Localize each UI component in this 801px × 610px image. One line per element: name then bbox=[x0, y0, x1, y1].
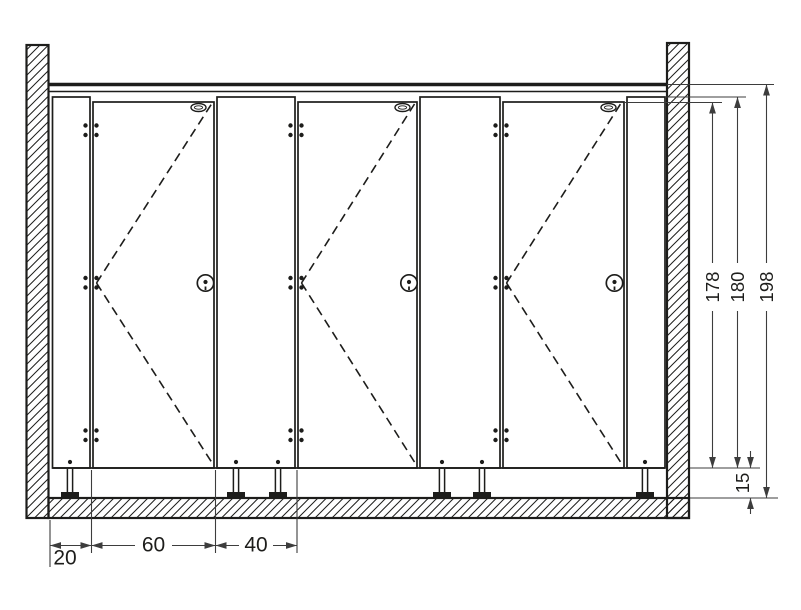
lock-icon bbox=[401, 275, 417, 291]
wall-pilaster-right bbox=[627, 97, 665, 468]
lock-icon bbox=[606, 275, 622, 291]
dim-label-partition-width: 40 bbox=[244, 534, 267, 557]
lock-icon bbox=[197, 275, 213, 291]
dim-label-partition-height: 180 bbox=[727, 272, 748, 303]
doors bbox=[53, 102, 666, 468]
divider-panel-2 bbox=[420, 97, 500, 468]
left-wall bbox=[27, 45, 49, 518]
dim-label-wall-to-door: 20 bbox=[53, 547, 76, 570]
door-2 bbox=[298, 102, 417, 468]
dim-label-floor-gap: 15 bbox=[732, 473, 753, 494]
partition-elevation-drawing: 178 180 198 15 20 60 40 bbox=[0, 0, 801, 610]
logo-icon bbox=[191, 104, 206, 112]
divider-panel-1 bbox=[217, 97, 295, 468]
dim-label-door-height: 178 bbox=[702, 272, 723, 303]
dim-label-total-height: 198 bbox=[756, 272, 777, 303]
floor-slab bbox=[49, 498, 690, 518]
logo-icon bbox=[395, 104, 410, 112]
dim-label-door-width: 60 bbox=[142, 534, 165, 557]
right-wall bbox=[667, 43, 689, 518]
logo-icon bbox=[601, 104, 616, 112]
door-1 bbox=[93, 102, 214, 468]
drawing-canvas: 178 180 198 15 20 60 40 bbox=[0, 0, 801, 610]
wall-pilaster-left bbox=[53, 97, 91, 468]
